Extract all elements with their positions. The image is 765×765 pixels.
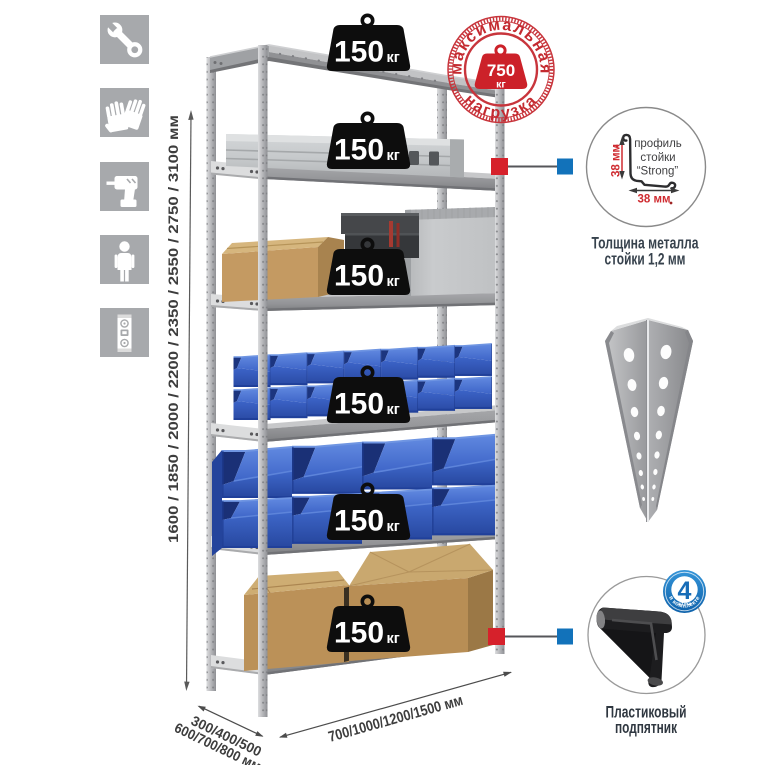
svg-text:подпятник: подпятник (615, 718, 677, 737)
svg-text:кг: кг (496, 79, 506, 91)
svg-text:стойки 1,2 мм: стойки 1,2 мм (605, 251, 686, 269)
svg-text:750: 750 (487, 61, 515, 80)
svg-text:38 мм: 38 мм (637, 194, 670, 206)
svg-text:профиль: профиль (634, 138, 682, 150)
svg-text:стойки: стойки (640, 152, 675, 164)
svg-text:“Strong”: “Strong” (637, 166, 679, 178)
svg-text:38 мм: 38 мм (611, 144, 623, 177)
svg-text:1600 / 1850 / 2000 / 2200 / 23: 1600 / 1850 / 2000 / 2200 / 2350 / 2550 … (165, 115, 181, 543)
